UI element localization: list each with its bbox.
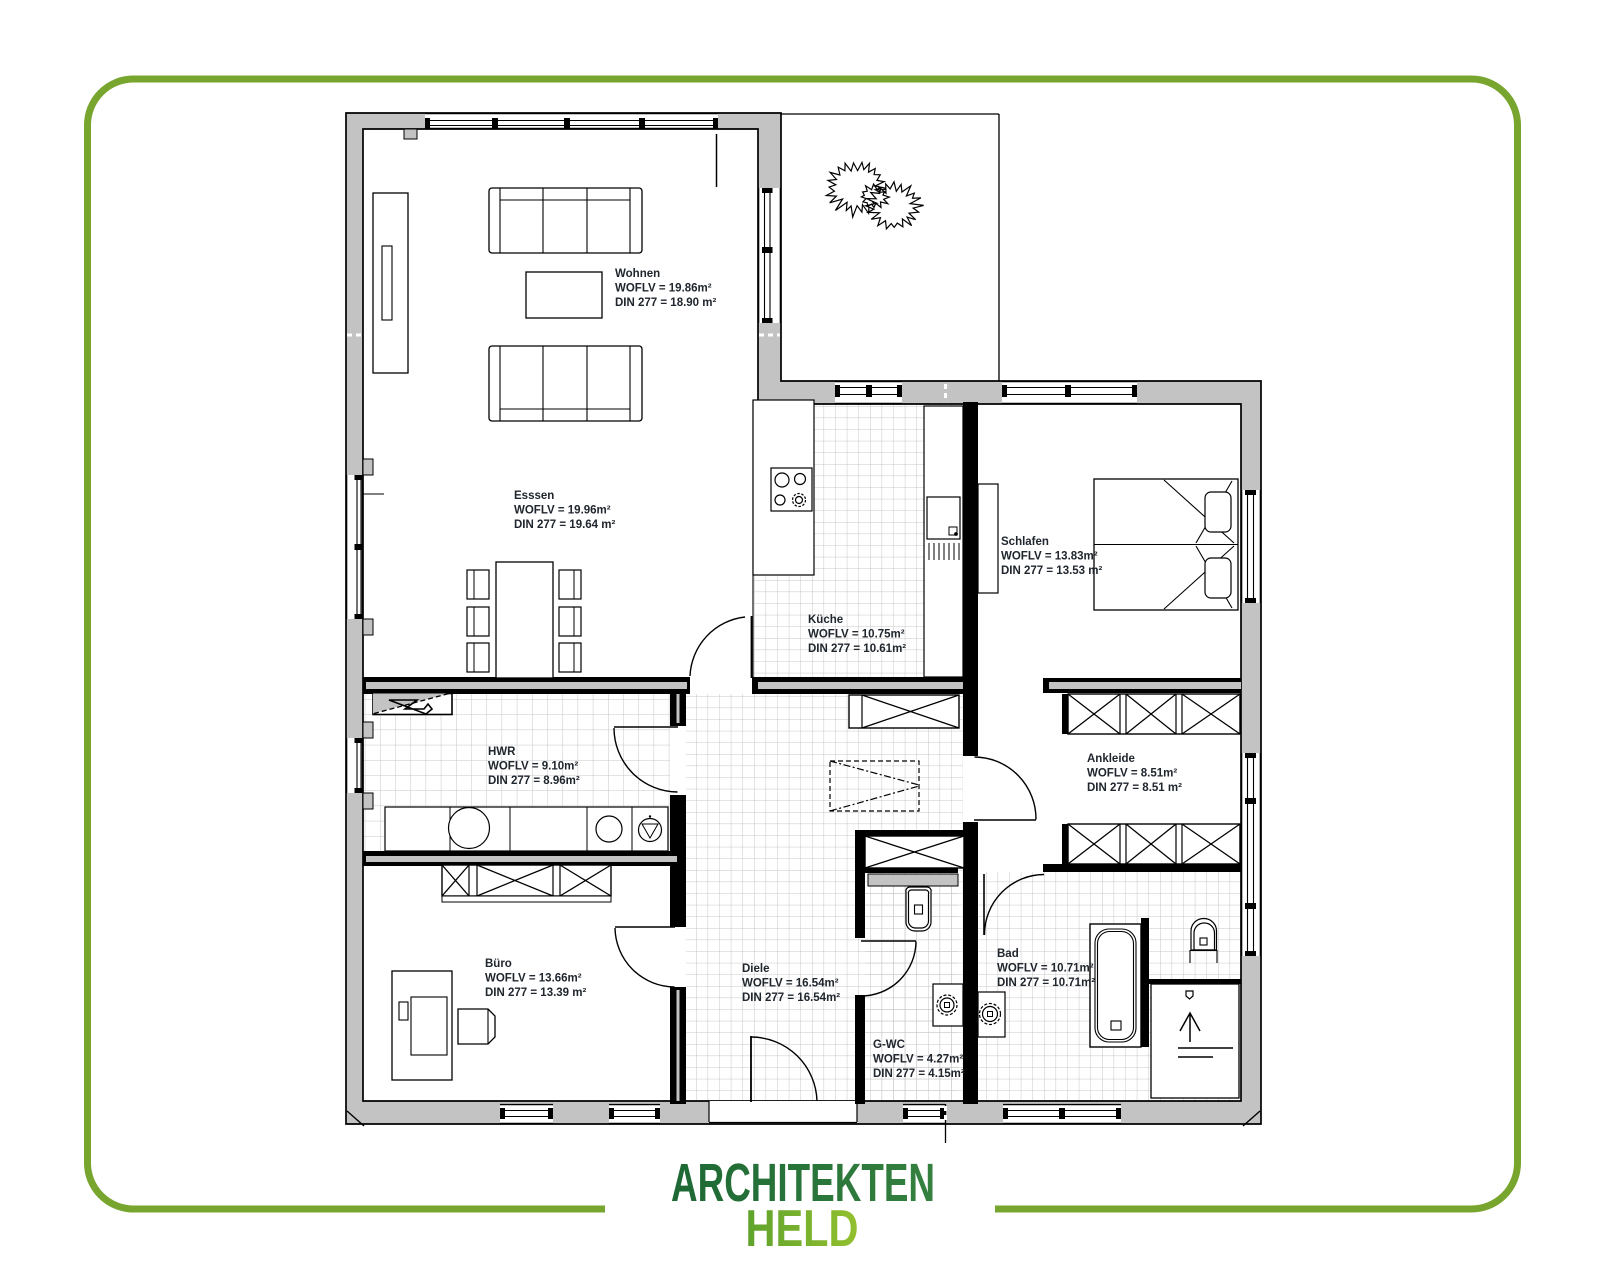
svg-text:WOFLV = 19.86m²: WOFLV = 19.86m² bbox=[615, 283, 712, 295]
svg-text:Diele: Diele bbox=[742, 963, 770, 975]
svg-text:DIN 277 = 19.64 m²: DIN 277 = 19.64 m² bbox=[514, 519, 615, 531]
svg-text:DIN 277 = 16.54m²: DIN 277 = 16.54m² bbox=[742, 992, 840, 1004]
svg-text:Büro: Büro bbox=[485, 958, 512, 970]
svg-text:DIN 277 = 8.51 m²: DIN 277 = 8.51 m² bbox=[1087, 782, 1182, 794]
svg-text:DIN 277 = 13.53 m²: DIN 277 = 13.53 m² bbox=[1001, 565, 1102, 577]
svg-text:DIN 277 = 10.61m²: DIN 277 = 10.61m² bbox=[808, 643, 906, 655]
svg-text:DIN 277 = 8.96m²: DIN 277 = 8.96m² bbox=[488, 775, 580, 787]
svg-text:Ankleide: Ankleide bbox=[1087, 753, 1135, 765]
svg-text:Wohnen: Wohnen bbox=[615, 268, 660, 280]
svg-text:WOFLV = 9.10m²: WOFLV = 9.10m² bbox=[488, 761, 578, 773]
svg-text:Esssen: Esssen bbox=[514, 490, 554, 502]
svg-text:WOFLV = 16.54m²: WOFLV = 16.54m² bbox=[742, 978, 839, 990]
svg-text:G-WC: G-WC bbox=[873, 1039, 905, 1051]
svg-text:WOFLV = 19.96m²: WOFLV = 19.96m² bbox=[514, 505, 611, 517]
svg-text:WOFLV = 10.71m²: WOFLV = 10.71m² bbox=[997, 963, 1094, 975]
svg-text:Küche: Küche bbox=[808, 614, 843, 626]
svg-text:HWR: HWR bbox=[488, 746, 516, 758]
svg-text:WOFLV = 4.27m²: WOFLV = 4.27m² bbox=[873, 1054, 963, 1066]
svg-text:WOFLV = 13.66m²: WOFLV = 13.66m² bbox=[485, 973, 582, 985]
svg-text:DIN 277 = 13.39 m²: DIN 277 = 13.39 m² bbox=[485, 987, 586, 999]
svg-text:Bad: Bad bbox=[997, 948, 1019, 960]
svg-text:Schlafen: Schlafen bbox=[1001, 536, 1049, 548]
svg-text:WOFLV = 10.75m²: WOFLV = 10.75m² bbox=[808, 629, 905, 641]
svg-text:DIN 277 = 18.90 m²: DIN 277 = 18.90 m² bbox=[615, 297, 716, 309]
svg-text:WOFLV = 8.51m²: WOFLV = 8.51m² bbox=[1087, 768, 1177, 780]
svg-text:WOFLV = 13.83m²: WOFLV = 13.83m² bbox=[1001, 551, 1098, 563]
svg-text:HELD: HELD bbox=[746, 1200, 859, 1258]
svg-text:DIN 277 = 10.71m²: DIN 277 = 10.71m² bbox=[997, 977, 1095, 989]
svg-text:DIN 277 = 4.15m²: DIN 277 = 4.15m² bbox=[873, 1068, 965, 1080]
